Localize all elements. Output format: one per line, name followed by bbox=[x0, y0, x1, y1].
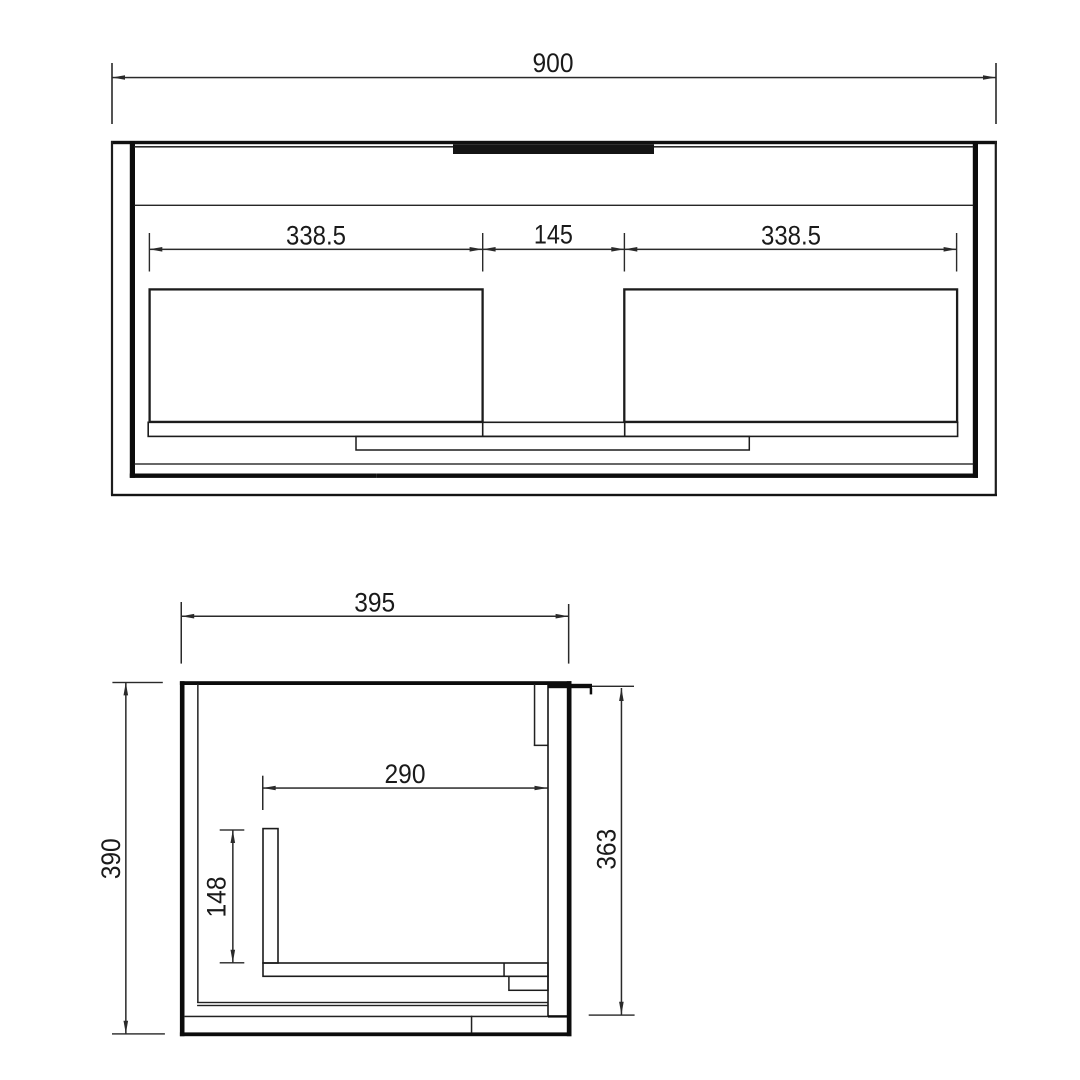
svg-text:395: 395 bbox=[354, 588, 395, 618]
svg-text:148: 148 bbox=[202, 877, 232, 918]
svg-text:145: 145 bbox=[534, 220, 573, 250]
svg-text:390: 390 bbox=[96, 838, 126, 879]
svg-text:363: 363 bbox=[592, 829, 622, 870]
svg-text:338.5: 338.5 bbox=[761, 221, 821, 251]
svg-text:338.5: 338.5 bbox=[286, 221, 346, 251]
svg-text:290: 290 bbox=[385, 759, 426, 789]
svg-text:900: 900 bbox=[533, 48, 574, 78]
